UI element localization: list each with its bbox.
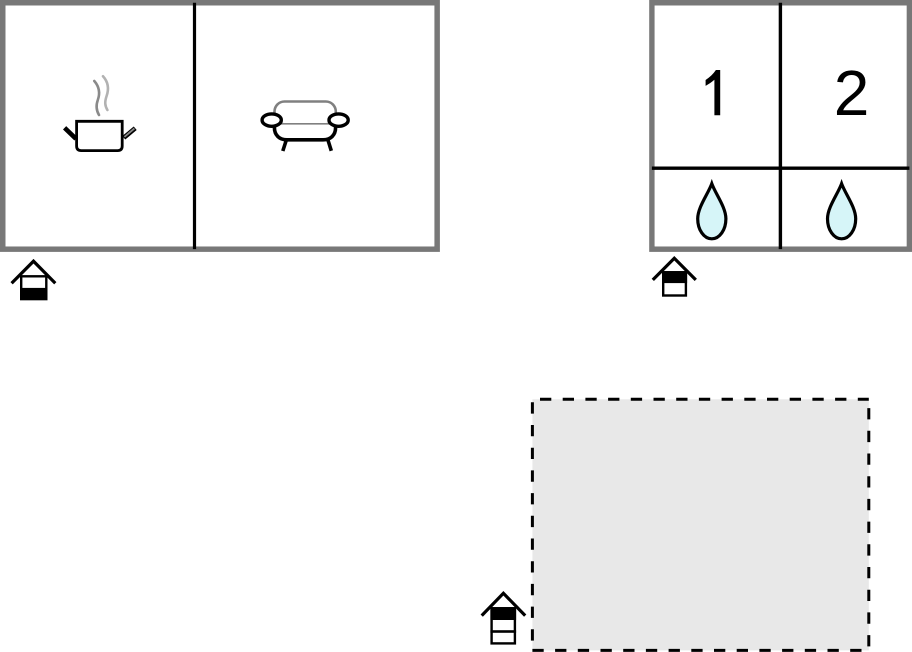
svg-text:2: 2 (834, 57, 870, 129)
